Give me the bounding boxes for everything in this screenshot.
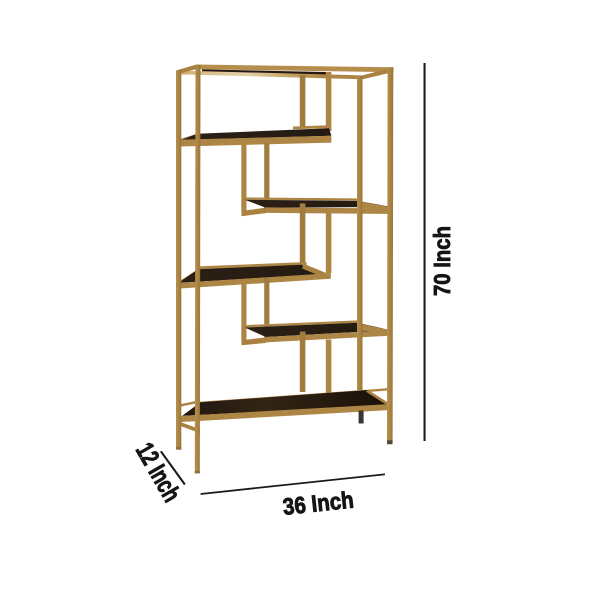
svg-text:70 Inch: 70 Inch [429, 226, 455, 296]
